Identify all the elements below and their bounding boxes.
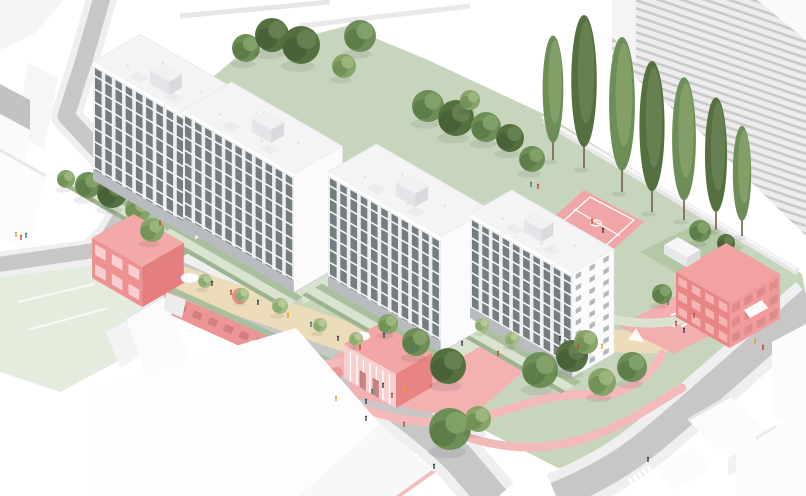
poplar-shadow — [674, 219, 688, 224]
person-head — [365, 399, 367, 401]
person-head — [25, 233, 27, 235]
person-head — [693, 313, 695, 315]
roof-vent — [444, 205, 447, 208]
tree-canopy-light — [278, 299, 286, 307]
tree-shadow — [503, 346, 516, 350]
tree-canopy-light — [203, 275, 210, 282]
roof-vent — [260, 140, 263, 143]
tree-canopy-light — [583, 332, 595, 344]
door-glass — [373, 378, 379, 399]
tree-canopy-light — [341, 56, 353, 68]
person-head — [647, 457, 649, 459]
person-head — [359, 345, 361, 347]
tree — [281, 26, 320, 72]
tree-canopy-light — [297, 29, 317, 49]
tree-canopy-light — [240, 289, 247, 296]
tree-shadow — [473, 332, 486, 336]
person-head — [310, 322, 312, 324]
person-head — [433, 464, 435, 466]
roof-vent — [218, 113, 221, 116]
tree-canopy-light — [424, 93, 441, 110]
tree-shadow — [347, 346, 360, 350]
person-head — [497, 351, 499, 353]
site-rendering-stage — [0, 0, 806, 496]
person-head — [601, 344, 603, 346]
person-head — [15, 232, 17, 234]
person-head — [383, 333, 385, 335]
tree-canopy-light — [354, 333, 361, 340]
axonometric-site-rendering — [0, 0, 806, 496]
person-head — [461, 341, 463, 343]
person-head — [762, 345, 764, 347]
person-head — [530, 182, 532, 184]
person-head — [412, 347, 414, 349]
person-head — [230, 290, 232, 292]
terrace-canopy — [181, 273, 199, 283]
tree-canopy-light — [529, 148, 543, 162]
roof-vent — [297, 142, 300, 145]
tree-canopy-light — [480, 319, 487, 326]
tree-shadow — [270, 314, 284, 319]
person-head — [211, 281, 213, 283]
person-head — [335, 396, 337, 398]
tree-canopy-light — [536, 355, 555, 374]
person-head — [403, 387, 405, 389]
poplar-crown-light — [548, 40, 561, 123]
poplar-crown-light — [616, 43, 633, 146]
person-head — [602, 228, 604, 230]
roof-vent — [573, 244, 576, 247]
person-head — [382, 383, 384, 385]
tree-shadow — [55, 187, 71, 192]
person-head — [257, 300, 259, 302]
poplar-shadow — [732, 235, 746, 240]
roof-vent — [364, 175, 367, 178]
tree-canopy-light — [629, 355, 645, 371]
canopy-top — [181, 273, 199, 283]
poplar-crown-light — [711, 103, 725, 191]
poplar-crown-light — [646, 67, 662, 168]
tree — [521, 352, 558, 395]
roof-vent — [401, 173, 404, 176]
tree-canopy-light — [445, 412, 467, 434]
tree-canopy-light — [356, 23, 373, 40]
person-head — [754, 339, 756, 341]
tree-canopy-light — [660, 286, 670, 296]
person-head — [403, 422, 405, 424]
poplar-shadow — [706, 229, 720, 234]
roof-vent — [502, 217, 505, 220]
poplar-shadow — [642, 211, 656, 216]
tree-canopy-light — [268, 21, 286, 39]
tree-canopy-light — [510, 333, 517, 340]
person-head — [667, 300, 669, 302]
person-head — [20, 235, 22, 237]
tree-shadow — [233, 302, 246, 306]
person-head — [577, 345, 579, 347]
tree-canopy-light — [413, 331, 428, 346]
tree-shadow — [311, 332, 324, 336]
person-head — [391, 393, 393, 395]
person-head — [337, 336, 339, 338]
poplar-shadow — [612, 191, 626, 196]
tree — [429, 348, 466, 391]
tree-canopy-light — [64, 172, 73, 181]
tree-canopy-light — [318, 319, 325, 326]
person-head — [159, 221, 161, 223]
tree-canopy-light — [444, 351, 463, 370]
tree-shadow — [650, 303, 668, 309]
tree-canopy-light — [468, 92, 478, 102]
person-head — [683, 328, 685, 330]
person-head — [675, 321, 677, 323]
tree-canopy-light — [599, 371, 614, 386]
poplar-shadow — [574, 167, 588, 172]
person-head — [371, 389, 373, 391]
poplar-crown-light — [578, 21, 595, 123]
poplar-crown-light — [738, 130, 750, 203]
tree-shadow — [196, 288, 209, 292]
tree-canopy-light — [475, 408, 489, 422]
roof-vent — [540, 242, 543, 245]
person-head — [591, 219, 593, 221]
person-head — [365, 416, 367, 418]
roof-vent — [200, 90, 203, 93]
poplar-shadow — [543, 159, 557, 164]
person-head — [287, 313, 289, 315]
tree-canopy-light — [386, 316, 396, 326]
person-head — [537, 184, 539, 186]
person-head — [559, 336, 561, 338]
roof-vent — [255, 111, 258, 114]
poplar-crown-light — [678, 83, 693, 178]
tree-canopy-light — [243, 37, 258, 52]
roof-vent — [126, 64, 129, 67]
tree-canopy-light — [483, 115, 499, 131]
tree-shadow — [458, 109, 476, 115]
door-glass — [360, 370, 366, 391]
tree-canopy-light — [507, 127, 522, 142]
